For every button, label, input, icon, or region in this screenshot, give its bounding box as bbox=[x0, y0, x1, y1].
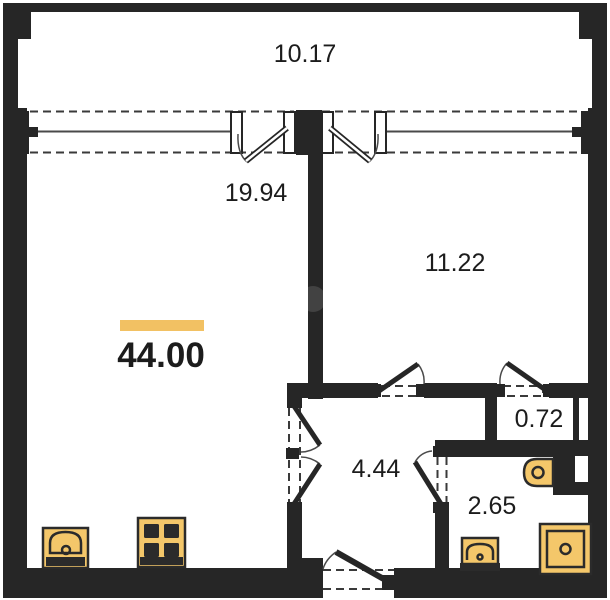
door-swing-arc bbox=[418, 364, 424, 384]
washing-machine-icon bbox=[540, 524, 591, 574]
window-end-post bbox=[21, 111, 29, 154]
door-swing-arc bbox=[301, 457, 320, 464]
window-end-post bbox=[581, 111, 589, 154]
door-frame-block bbox=[495, 384, 505, 397]
bathroom-door bbox=[415, 446, 449, 513]
closet-door bbox=[495, 363, 553, 397]
door-leaf bbox=[294, 464, 320, 504]
living-room-area-label: 19.94 bbox=[225, 179, 288, 207]
door-frame bbox=[231, 112, 242, 153]
door-handle-block bbox=[286, 448, 299, 459]
kitchen-sink-icon bbox=[43, 528, 88, 568]
wall-segment bbox=[3, 3, 607, 12]
door-swing-arc bbox=[415, 451, 432, 462]
bedroom-area-label: 11.22 bbox=[425, 249, 486, 277]
wall-segment bbox=[592, 3, 607, 112]
door-swing-arc bbox=[500, 363, 507, 384]
wall-segment bbox=[424, 383, 497, 398]
door-opening bbox=[503, 386, 543, 396]
floor-plan: 10.17 19.94 11.22 4.44 0.72 2.65 44.00 bbox=[0, 0, 610, 600]
window-end-nub bbox=[29, 127, 38, 137]
door-swing-arc bbox=[323, 552, 336, 569]
door-leaf-inner bbox=[246, 128, 287, 161]
floor-plan-canvas: 10.17 19.94 11.22 4.44 0.72 2.65 44.00 bbox=[0, 0, 610, 600]
bedroom-door bbox=[371, 364, 426, 397]
door-frame-block bbox=[416, 384, 426, 397]
wall-segment bbox=[308, 152, 323, 399]
balcony-area-label: 10.17 bbox=[274, 40, 337, 68]
closet-area-label: 0.72 bbox=[515, 405, 564, 433]
wall-segment bbox=[287, 502, 302, 568]
wall-segment bbox=[3, 3, 18, 112]
door-leaf bbox=[294, 406, 320, 445]
bathroom-sink-icon bbox=[460, 538, 500, 571]
watermark bbox=[300, 286, 326, 312]
duct-niche bbox=[575, 456, 588, 482]
toilet-icon bbox=[524, 459, 553, 486]
door-swing-arc bbox=[301, 445, 320, 452]
wall-segment bbox=[296, 110, 322, 155]
total-area-label: 44.00 bbox=[117, 336, 205, 375]
wall-segment bbox=[485, 398, 497, 441]
wall-segment bbox=[287, 383, 378, 398]
door-leaf bbox=[507, 363, 547, 391]
window-end-nub bbox=[572, 127, 581, 137]
living-room-double-door bbox=[286, 406, 320, 504]
wall-segment bbox=[549, 383, 588, 398]
hallway-area-label: 4.44 bbox=[352, 455, 401, 483]
entrance-door bbox=[323, 552, 396, 590]
wall-segment bbox=[573, 398, 579, 441]
bathroom-area-label: 2.65 bbox=[468, 492, 517, 520]
door-leaf-inner bbox=[330, 128, 370, 161]
door-frame-block bbox=[433, 446, 449, 457]
walls bbox=[3, 3, 607, 598]
wall-segment bbox=[3, 568, 323, 598]
door-leaf bbox=[336, 552, 389, 582]
wall-segment bbox=[3, 108, 27, 598]
total-area-accent-bar bbox=[120, 320, 204, 331]
stove-icon bbox=[138, 518, 185, 567]
